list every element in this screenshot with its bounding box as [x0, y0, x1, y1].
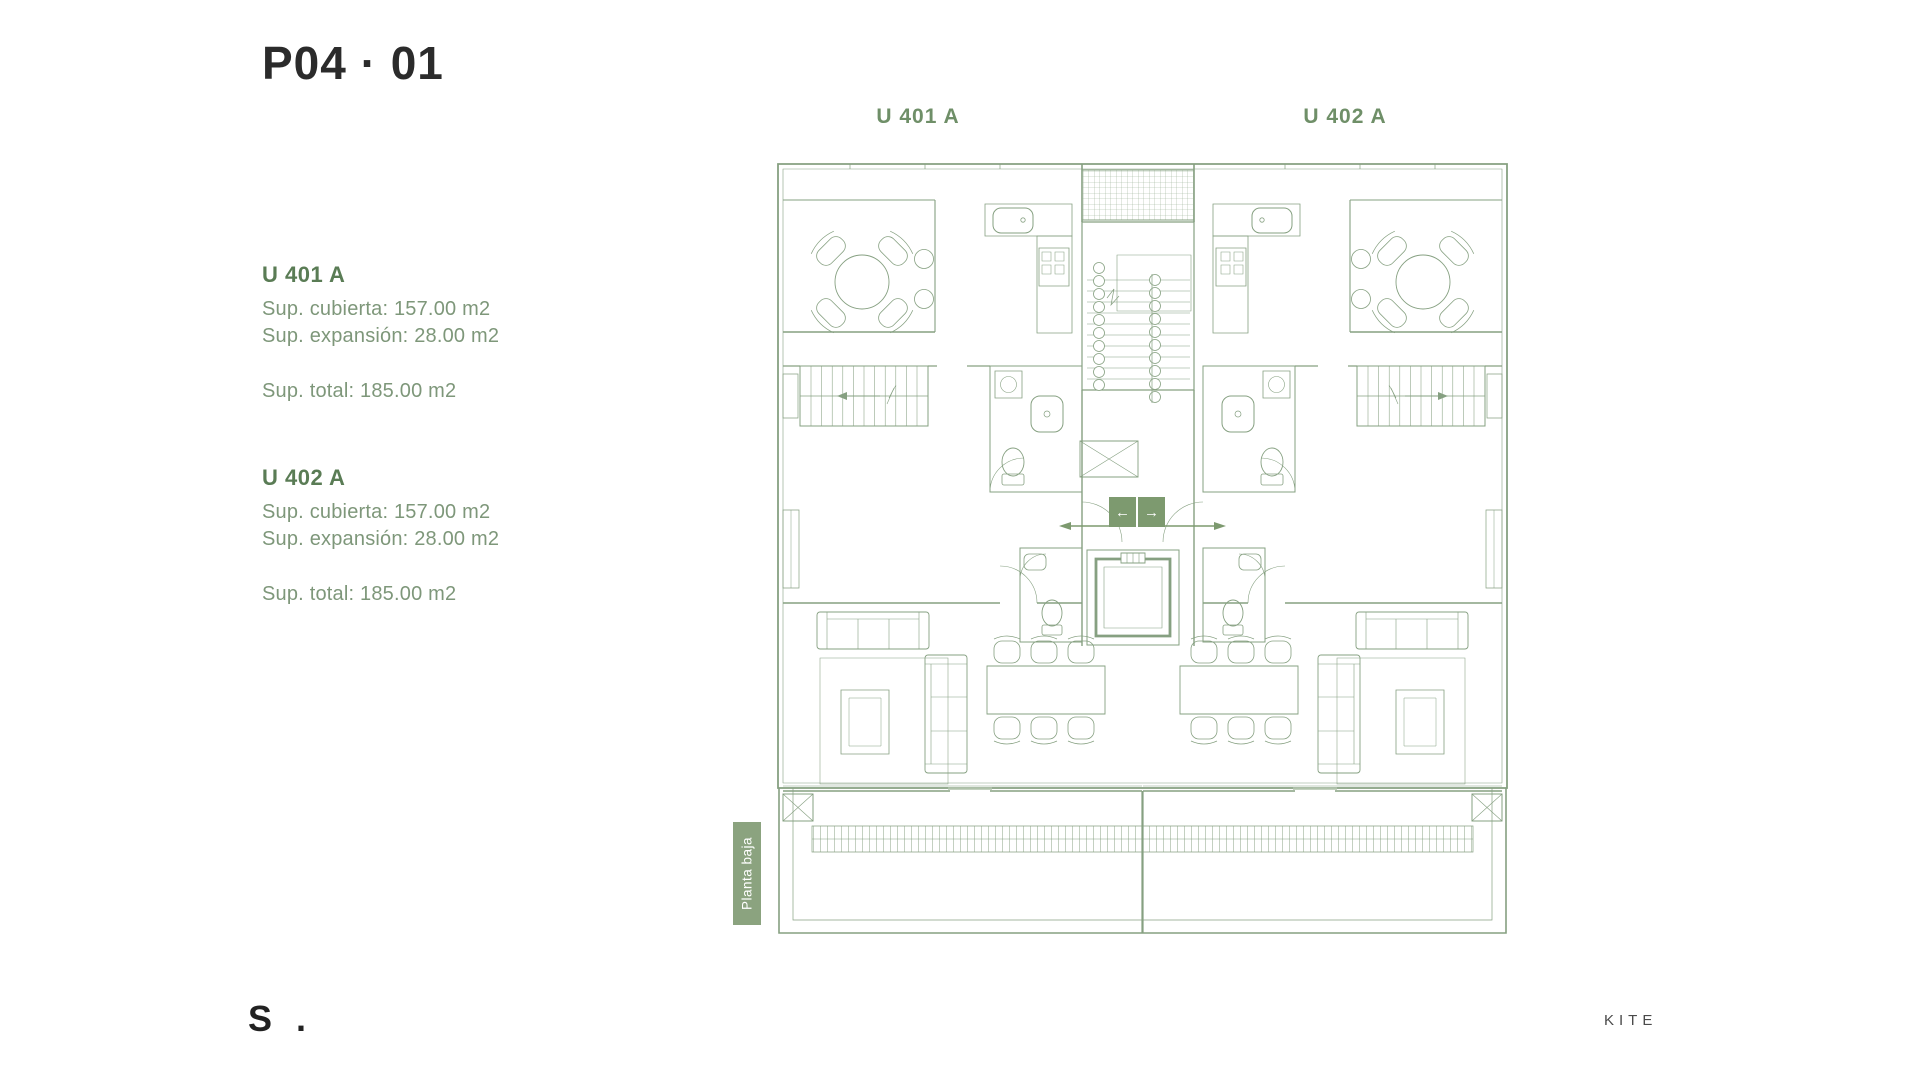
floor-plan-drawing [775, 160, 1510, 940]
stair-core [1080, 164, 1194, 646]
unit-401-drawing [783, 164, 1142, 821]
unit-info-402: U 402 A Sup. cubierta: 157.00 m2 Sup. ex… [262, 465, 602, 608]
elevator-shaft [1080, 441, 1179, 645]
stair-balusters [1094, 263, 1161, 404]
unit-name: U 402 A [262, 465, 602, 491]
unit-expansion-area: Sup. expansión: 28.00 m2 [262, 526, 602, 553]
brand-kite: KITE [1604, 1012, 1657, 1029]
unit-covered-area: Sup. cubierta: 157.00 m2 [262, 296, 602, 323]
elevator-cab [1096, 559, 1170, 636]
floor-plan: U 401 A U 402 A [775, 160, 1510, 940]
unit-covered-area: Sup. cubierta: 157.00 m2 [262, 499, 602, 526]
unit-total-area: Sup. total: 185.00 m2 [262, 581, 602, 608]
elevator-direction-icon: ← → [1109, 497, 1165, 527]
plan-label-u402: U 402 A [1260, 105, 1430, 129]
terrace [779, 788, 1506, 933]
studio-logo: S . [248, 998, 313, 1040]
unit-expansion-area: Sup. expansión: 28.00 m2 [262, 323, 602, 350]
plan-label-u401: U 401 A [833, 105, 1003, 129]
arrow-left-icon: ← [1109, 497, 1136, 527]
arrow-right-icon: → [1138, 497, 1165, 527]
floor-tag: Planta baja [733, 822, 761, 925]
unit-name: U 401 A [262, 262, 602, 288]
unit-total-area: Sup. total: 185.00 m2 [262, 378, 602, 405]
unit-402-drawing [1143, 164, 1502, 821]
hatched-shaft [1082, 170, 1194, 220]
unit-info-401: U 401 A Sup. cubierta: 157.00 m2 Sup. ex… [262, 262, 602, 405]
page-title: P04 · 01 [262, 36, 444, 90]
